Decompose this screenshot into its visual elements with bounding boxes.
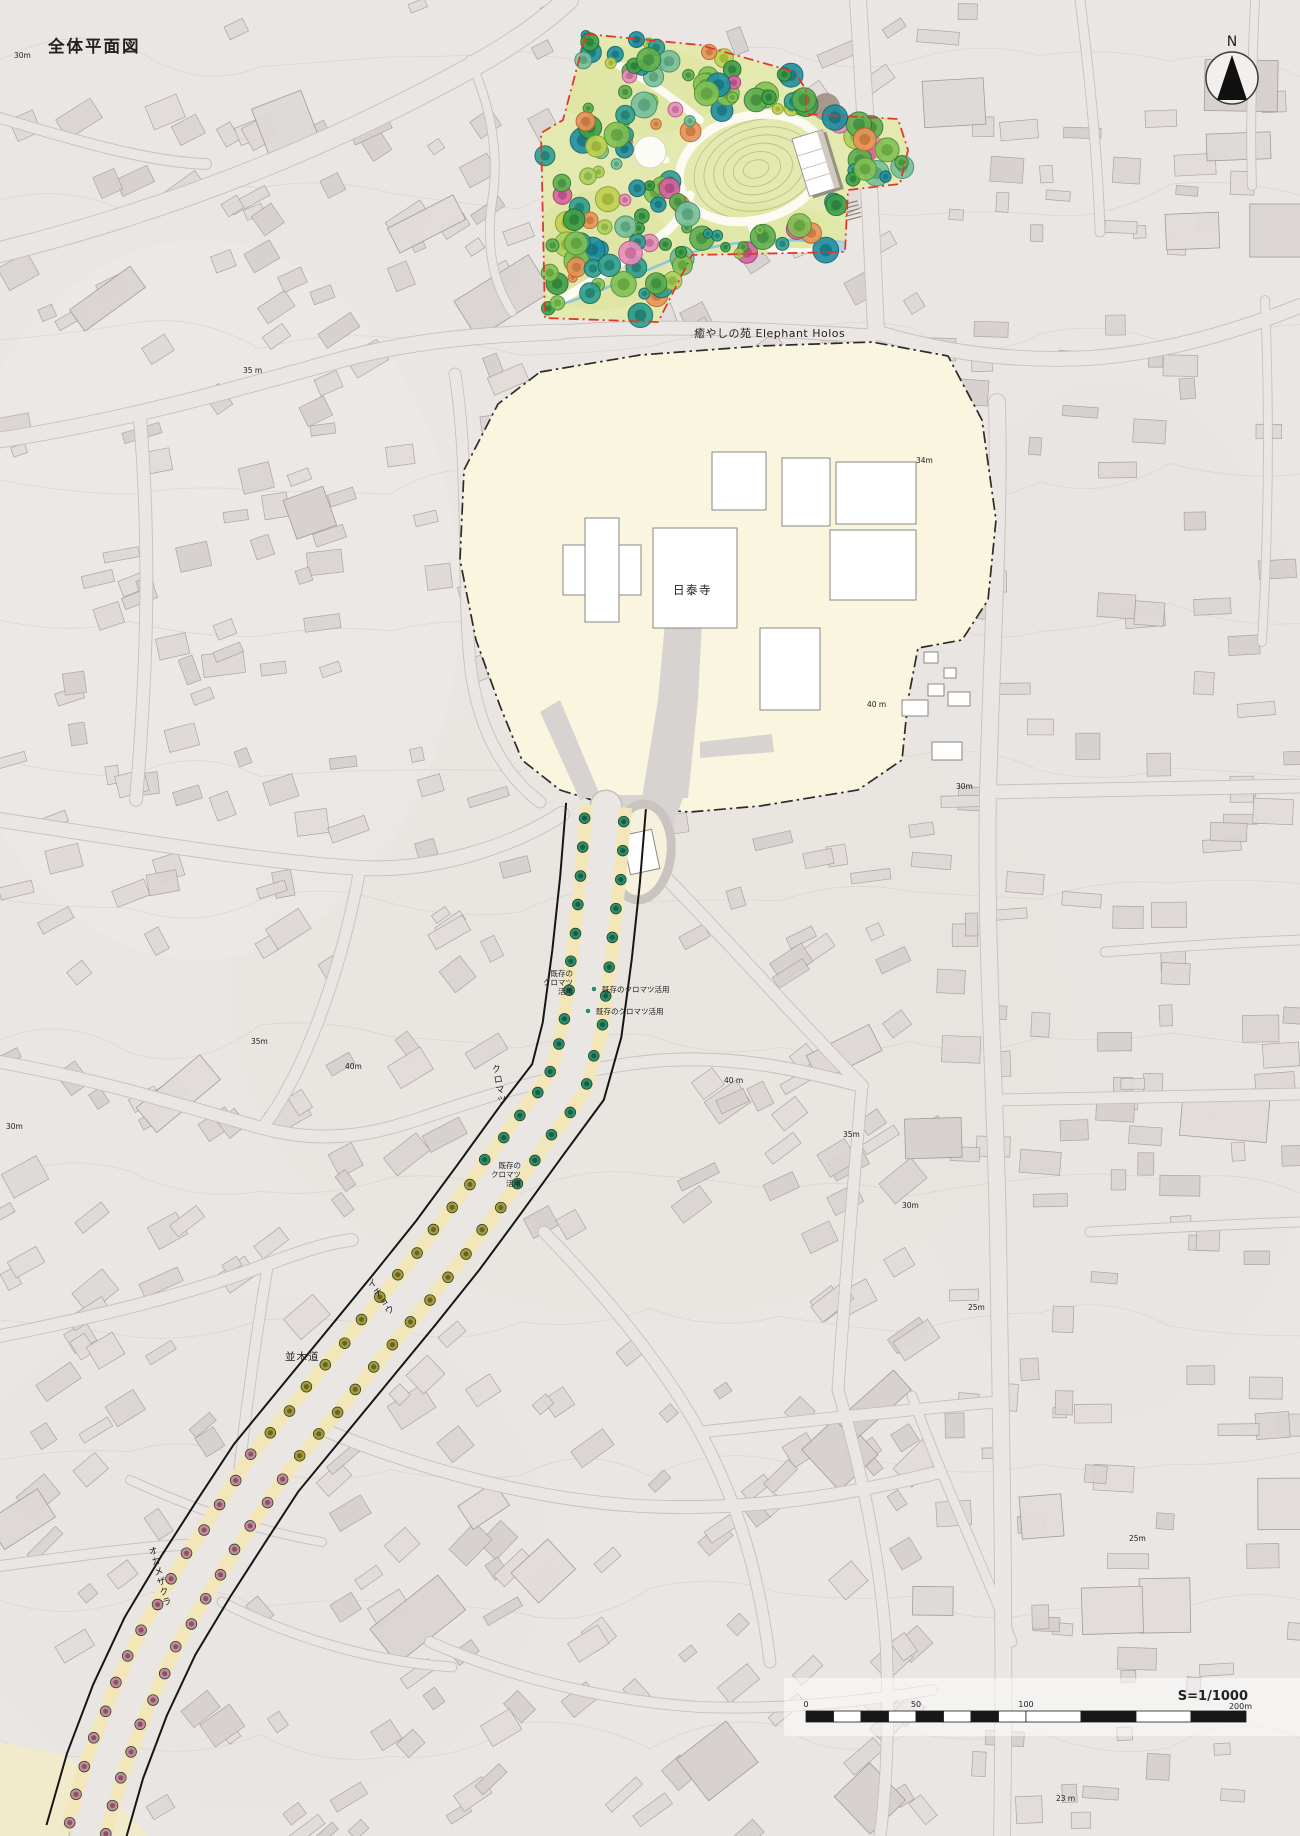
street-tree-core (248, 1523, 253, 1528)
garden-tree-core (850, 176, 857, 183)
street-tree-core (151, 1698, 156, 1703)
scalebar-segment (1026, 1711, 1081, 1722)
garden-tree-core (633, 36, 641, 44)
elevation-label: 30m (6, 1122, 23, 1131)
building (1062, 891, 1102, 908)
garden-tree-core (554, 299, 561, 306)
street-tree-core (408, 1319, 413, 1324)
scalebar-segment (1191, 1711, 1246, 1722)
street-tree-core (517, 1113, 522, 1118)
scalebar-segment (889, 1711, 917, 1722)
street-tree-core (535, 1090, 540, 1095)
building (1253, 798, 1294, 825)
building (68, 722, 87, 746)
elevation-label: 34m (916, 456, 933, 465)
garden-tree-core (719, 54, 728, 63)
street-tree-core (568, 959, 573, 964)
garden-tree-core (622, 197, 628, 203)
scalebar-segment (861, 1711, 889, 1722)
street-tree-core (316, 1431, 321, 1436)
elevation-label: 35m (251, 1037, 268, 1046)
building (974, 321, 1008, 337)
building (1040, 165, 1054, 183)
street-tree-core (464, 1252, 469, 1257)
street-tree-core (110, 1803, 115, 1808)
large-building (1165, 212, 1220, 250)
building (410, 747, 425, 762)
street-tree-core (74, 1792, 79, 1797)
street-tree-core (203, 1596, 208, 1601)
building (1214, 1743, 1231, 1756)
street-tree-core (173, 1644, 178, 1649)
garden-tree-core (614, 161, 619, 166)
building (1098, 462, 1136, 478)
street-tree-core (297, 1453, 302, 1458)
building (1146, 1753, 1170, 1780)
scalebar-end-label: 200m (1229, 1702, 1252, 1711)
street-tree-core (138, 1722, 143, 1727)
street-tree-core (580, 845, 585, 850)
elevation-label: 25m (968, 1303, 985, 1312)
building (1091, 1271, 1118, 1284)
street-tree-core (304, 1384, 309, 1389)
elevation-label: 40 m (867, 700, 886, 709)
scalebar-tick-label: 100 (1018, 1700, 1033, 1709)
street-tree-core (265, 1500, 270, 1505)
street-tree-core (431, 1227, 436, 1232)
garden-tree-core (687, 118, 692, 123)
elevation-label: 35 m (243, 366, 262, 375)
garden-tree-core (664, 56, 674, 66)
elevation-label: 40m (345, 1062, 362, 1071)
site-plan-page: 日泰寺 (0, 0, 1300, 1836)
building (992, 908, 1027, 921)
building (1111, 1170, 1126, 1190)
garden-tree-core (608, 60, 613, 65)
scalebar-segment (1136, 1711, 1191, 1722)
building (1097, 1032, 1131, 1051)
garden-tree-core (622, 89, 628, 95)
building (972, 1751, 987, 1776)
building (1046, 190, 1071, 202)
garden-tree-core (635, 309, 647, 321)
building (1282, 1145, 1300, 1166)
garden-tree-core (775, 106, 780, 111)
building (1199, 1663, 1234, 1676)
garden-tree-core (586, 106, 591, 111)
annotation-marker-dot (591, 986, 597, 992)
garden-tree-core (596, 169, 602, 175)
garden-tree-core (860, 164, 871, 175)
large-building (1081, 1586, 1143, 1634)
garden-tree-core (662, 241, 668, 247)
street-tree-core (480, 1227, 485, 1232)
street-tree-core (118, 1775, 123, 1780)
street-tree-core (568, 1110, 573, 1115)
building (1121, 1078, 1145, 1089)
garden-tree-core (611, 51, 619, 59)
garden-tree-core (672, 106, 679, 113)
street-tree-core (184, 1551, 189, 1556)
street-tree-core (91, 1735, 96, 1740)
street-tree-core (162, 1671, 167, 1676)
garden-tree-core (585, 38, 594, 47)
elevation-label: 30m (902, 1201, 919, 1210)
building (1193, 671, 1214, 695)
garden-tree-core (621, 110, 630, 119)
street-tree-core (113, 1680, 118, 1685)
building (1113, 906, 1144, 929)
street-tree-core (287, 1409, 292, 1414)
large-building (1250, 204, 1300, 257)
building (1161, 963, 1190, 985)
building (1176, 185, 1199, 196)
garden-tree-core (881, 144, 893, 156)
building (306, 549, 343, 576)
garden-tree-core (611, 129, 623, 141)
street-tree-core (202, 1528, 207, 1533)
elevation-label: 30m (956, 782, 973, 791)
street-tree-core (482, 1157, 487, 1162)
building (1156, 1513, 1174, 1530)
street-tree-core (498, 1205, 503, 1210)
scalebar-tick-label: 50 (911, 1700, 921, 1709)
garden-tree-core (558, 179, 566, 187)
building (1031, 1012, 1050, 1037)
garden-tree-core (642, 291, 647, 296)
large-building (1019, 1494, 1064, 1539)
building (949, 209, 964, 220)
building (1055, 1391, 1073, 1415)
garden-tree-core (638, 99, 650, 111)
garden-tree-core (651, 278, 661, 288)
building (1112, 157, 1141, 184)
scalebar-segment (944, 1711, 972, 1722)
garden-tree-core (859, 134, 870, 145)
street-tree-core (232, 1547, 237, 1552)
garden-tree-core (665, 183, 675, 193)
street-tree-core (556, 1042, 561, 1047)
scalebar-segment (999, 1711, 1027, 1722)
garden-plaza (634, 136, 666, 168)
garden-tree-core (686, 126, 696, 136)
elevation-label: 25m (1129, 1534, 1146, 1543)
garden-tree-core (741, 244, 746, 249)
street-tree-core (582, 816, 587, 821)
street-tree-core (353, 1387, 358, 1392)
street-tree-core (548, 1069, 553, 1074)
street-tree-core (415, 1251, 420, 1256)
street-tree-core (155, 1602, 160, 1607)
existing-kuromatsu-annotation: 既存のクロマツ活用 (602, 984, 670, 994)
street-tree-core (342, 1341, 347, 1346)
garden-tree-core (714, 233, 719, 238)
garden-tree-core (638, 213, 645, 220)
building (1194, 598, 1232, 615)
garden-tree-core (625, 247, 636, 258)
building (1030, 225, 1042, 242)
site-plan-map: 日泰寺 (0, 0, 1300, 1836)
garden-tree-core (617, 278, 629, 290)
street-tree-core (359, 1317, 364, 1322)
garden-tree-core (730, 95, 735, 100)
garden-tree-core (591, 141, 601, 151)
garden-tree-core (585, 288, 595, 298)
building (1262, 1042, 1300, 1068)
garden-tree-core (706, 231, 710, 235)
building (941, 795, 981, 807)
building (996, 192, 1009, 212)
garden-tree-core (706, 48, 713, 55)
street-tree-core (607, 965, 612, 970)
garden-tree-core (572, 263, 581, 272)
building (1071, 1812, 1091, 1828)
building (965, 913, 978, 936)
building (1228, 635, 1260, 656)
garden-tree-core (589, 264, 597, 272)
building (990, 156, 1024, 183)
garden-tree-core (717, 105, 728, 116)
garden-tree-core (820, 244, 832, 256)
building (1218, 1424, 1259, 1436)
street-tree-core (600, 1022, 605, 1027)
building (260, 661, 286, 676)
garden-tree-core (731, 79, 737, 85)
garden-tree-core (728, 65, 736, 73)
building (1105, 221, 1137, 234)
street-tree-core (532, 1158, 537, 1163)
building (295, 808, 330, 836)
street-tree-core (584, 1081, 589, 1086)
building (1060, 1120, 1089, 1141)
building (1284, 751, 1300, 765)
street-tree-core (139, 1628, 144, 1633)
building (1117, 1647, 1156, 1670)
street-tree-core (613, 906, 618, 911)
garden-tree-core (682, 208, 694, 220)
street-tree-core (248, 1452, 253, 1457)
street-tree-core (549, 1132, 554, 1137)
garden-tree-core (646, 239, 654, 247)
building (941, 1035, 980, 1063)
building (1006, 872, 1045, 895)
large-building (922, 78, 986, 128)
scalebar-segment (806, 1711, 834, 1722)
building (1134, 601, 1165, 627)
building (1179, 378, 1196, 400)
large-building (1206, 132, 1271, 161)
page-title: 全体平面図 (47, 36, 141, 56)
building (1160, 1175, 1200, 1196)
street-tree-core (562, 1016, 567, 1021)
garden-tree-core (831, 200, 841, 210)
large-building (1258, 1478, 1300, 1530)
building (1019, 1149, 1061, 1175)
street-tree-core (103, 1709, 108, 1714)
scalebar-segment (971, 1711, 999, 1722)
street-tree-core (575, 902, 580, 907)
building (949, 1289, 979, 1301)
building (1145, 110, 1177, 128)
street-tree-core (446, 1275, 451, 1280)
building (1020, 1358, 1039, 1381)
scalebar-band (784, 1678, 1300, 1736)
garden-tree-core (586, 216, 594, 224)
building (1147, 753, 1171, 776)
building (1247, 1544, 1280, 1569)
building (1210, 822, 1247, 841)
building (1062, 405, 1098, 418)
street-tree-core (428, 1298, 433, 1303)
street-tree-core (610, 935, 615, 940)
building (1015, 1796, 1042, 1824)
building (1283, 1007, 1300, 1025)
elevation-label: 35m (843, 1130, 860, 1139)
building (1237, 701, 1276, 717)
street-tree-core (620, 848, 625, 853)
garden-tree-core (569, 214, 579, 224)
building (1151, 902, 1186, 928)
garden-tree-core (545, 305, 551, 311)
street-tree-core (129, 1749, 134, 1754)
street-tree-core (578, 874, 583, 879)
street-tree-core (218, 1572, 223, 1577)
street-tree-core (82, 1764, 87, 1769)
garden-tree-core (581, 117, 590, 126)
building (1128, 1126, 1162, 1146)
elevation-label: 30m (14, 51, 31, 60)
garden-tree-core (601, 223, 608, 230)
garden-tree-core (636, 226, 641, 231)
scalebar-tick-label: 0 (803, 1700, 808, 1709)
garden-tree-core (723, 245, 728, 250)
street-tree-core (618, 877, 623, 882)
garden-tree-core (633, 184, 641, 192)
garden-tree-core (750, 94, 761, 105)
street-tree-core (467, 1182, 472, 1187)
scalebar-segment (916, 1711, 944, 1722)
building (1033, 1193, 1067, 1207)
street-tree-core (395, 1272, 400, 1277)
building (386, 444, 416, 467)
building (1105, 315, 1125, 335)
garden-tree-core (898, 159, 904, 165)
street-tree-core (573, 931, 578, 936)
garden-name-label: 癒やしの苑 Elephant Holos (694, 326, 845, 340)
scalebar-segment (1081, 1711, 1136, 1722)
garden-tree-core (647, 183, 652, 188)
road (988, 786, 1300, 792)
large-building (1139, 1578, 1191, 1633)
building (1287, 1623, 1300, 1641)
building (1052, 1306, 1074, 1333)
street-tree-core (501, 1135, 506, 1140)
large-building (913, 1586, 954, 1615)
street-tree-core (233, 1478, 238, 1483)
garden-tree-core (655, 201, 662, 208)
namikimichi-label: 並木道 (285, 1350, 320, 1363)
building (1107, 1553, 1148, 1569)
building (1231, 1142, 1245, 1161)
garden-tree-core (686, 72, 692, 78)
street-tree-core (390, 1342, 395, 1347)
building (1242, 1015, 1279, 1042)
garden-tree-core (546, 269, 554, 277)
garden-tree-core (620, 221, 630, 231)
garden-tree-core (649, 72, 659, 82)
garden-tree-core (678, 249, 683, 254)
street-tree-core (450, 1205, 455, 1210)
north-arrow-label: N (1227, 34, 1237, 50)
building (1032, 1605, 1049, 1629)
elevation-label: 23 m (1056, 1794, 1075, 1803)
garden-tree-core (798, 94, 810, 106)
road (998, 1094, 1300, 1100)
street-tree-core (591, 1053, 596, 1058)
building (1027, 719, 1053, 735)
street-tree-core (125, 1653, 130, 1658)
garden-tree-core (668, 276, 677, 285)
building (958, 4, 977, 20)
scalebar-segment (834, 1711, 862, 1722)
building (1084, 1464, 1107, 1483)
building (937, 969, 966, 994)
street-tree-core (621, 819, 626, 824)
building (1187, 1366, 1215, 1385)
street-tree-core (603, 993, 608, 998)
garden-tree-core (883, 174, 888, 179)
garden-tree-core (604, 260, 615, 271)
street-tree-core (335, 1410, 340, 1415)
garden-tree-core (602, 193, 614, 205)
garden-tree-core (701, 87, 713, 99)
street-tree-core (67, 1820, 72, 1825)
building (945, 1413, 964, 1438)
temple-name-label: 日泰寺 (673, 583, 712, 597)
building (1220, 1789, 1245, 1803)
building (1184, 512, 1206, 530)
building (1159, 1005, 1173, 1027)
garden-tree-core (829, 111, 841, 123)
garden-tree-core (765, 94, 772, 101)
building (1255, 1411, 1290, 1439)
building (425, 563, 453, 590)
building (1082, 1786, 1118, 1800)
scalebar: 050100 S=1/1000 200m (784, 1678, 1300, 1736)
street-tree-core (169, 1576, 174, 1581)
garden-tree-core (794, 220, 805, 231)
garden-tree-core (643, 54, 655, 66)
building (1244, 1251, 1269, 1265)
garden-tree-core (584, 172, 592, 180)
garden-tree-core (758, 228, 762, 232)
building (1074, 1404, 1111, 1423)
existing-kuromatsu-annotation: 既存のクロマツ活用 (596, 1006, 664, 1016)
street-tree-core (268, 1430, 273, 1435)
building (1133, 419, 1167, 444)
building (1000, 119, 1039, 141)
garden-tree-core (653, 122, 658, 127)
elevation-label: 40 m (724, 1076, 743, 1085)
street-tree-core (323, 1362, 328, 1367)
annotation-marker-dot (585, 1008, 591, 1014)
building (911, 852, 951, 870)
street-tree-core (217, 1502, 222, 1507)
building (1163, 355, 1198, 377)
large-building (904, 1117, 962, 1158)
street-tree-core (280, 1477, 285, 1482)
building (1028, 437, 1041, 455)
